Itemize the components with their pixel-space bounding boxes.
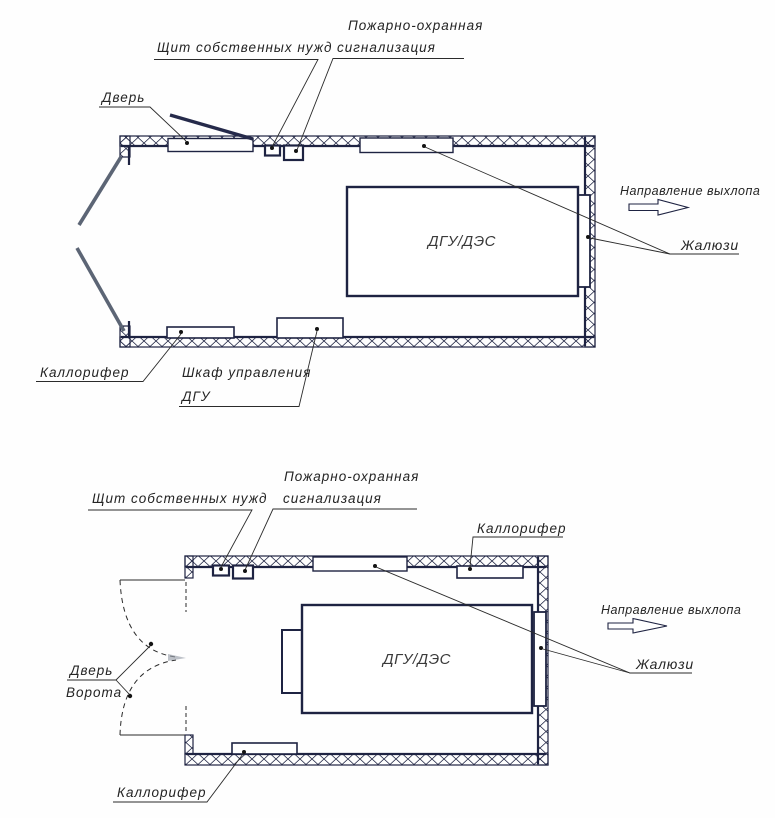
top-heater-dot — [179, 330, 183, 334]
plans-canvas: Щит собственных нужд Пожарно-охранная си… — [0, 0, 775, 818]
bottom-heater-top-dot — [468, 567, 472, 571]
bottom-heater-bottom-dot — [242, 750, 246, 754]
top-fire-label-line1: Пожарно-охранная — [348, 18, 483, 33]
bottom-side-louver-dot — [539, 646, 543, 650]
bottom-heater-top-unit — [457, 566, 523, 578]
top-equipment — [167, 187, 578, 338]
top-control-cabinet-unit — [277, 318, 343, 338]
bottom-door-label: Дверь — [68, 663, 113, 678]
top-gate-leaf-lower — [77, 248, 124, 331]
top-heater-unit — [167, 327, 234, 338]
bottom-fire-leader-dot — [243, 569, 247, 573]
top-door-leader-dot — [185, 141, 189, 145]
bottom-vent-louver — [313, 557, 407, 571]
bottom-gate-meeting-mark — [168, 654, 186, 661]
bottom-gate-label: Ворота — [66, 685, 122, 700]
bottom-generator-radiator — [282, 630, 302, 693]
bottom-gate-opening — [120, 580, 186, 735]
bottom-panel-label: Щит собственных нужд — [92, 491, 267, 506]
top-fire-alarm-box — [284, 146, 303, 161]
bottom-louvers-leader-side — [543, 649, 630, 673]
top-door-open-leaf — [170, 115, 253, 139]
bottom-vent-dot — [373, 564, 377, 568]
top-side-louver — [578, 195, 590, 287]
top-door-panel — [168, 139, 253, 152]
bottom-heater-bottom-unit — [232, 743, 297, 754]
bottom-gate-dot-lower — [128, 694, 132, 698]
top-cabinet-dot — [315, 327, 319, 331]
top-cabinet-label-line1: Шкаф управления — [182, 365, 311, 380]
top-louvers-leader-side — [590, 238, 670, 254]
bottom-side-louver — [534, 612, 546, 706]
bottom-fire-alarm-box — [233, 566, 253, 579]
top-vent-louver — [360, 138, 453, 153]
bottom-gate-dot-upper — [149, 642, 153, 646]
bottom-fire-label-line2: сигнализация — [283, 491, 382, 506]
bottom-fire-label-line1: Пожарно-охранная — [284, 469, 419, 484]
top-fire-label-line2: сигнализация — [337, 40, 436, 55]
bottom-generator-label: ДГУ/ДЭС — [381, 651, 451, 668]
bottom-wall-west-lower — [185, 735, 193, 754]
bottom-gate-swing-arc-upper — [120, 580, 176, 657]
technical-drawing-page: Щит собственных нужд Пожарно-охранная си… — [0, 0, 775, 818]
top-cabinet-label-line2: ДГУ — [180, 389, 211, 404]
top-generator-label: ДГУ/ДЭС — [426, 233, 496, 250]
top-door-label: Дверь — [100, 90, 145, 105]
top-exhaust-arrow-icon — [629, 200, 688, 216]
bottom-louvers-label: Жалюзи — [635, 656, 694, 672]
top-exhaust-label: Направление выхлопа — [620, 184, 760, 198]
top-gate-leaf-upper — [79, 157, 121, 225]
bottom-equipment — [232, 566, 532, 754]
bottom-plan: Щит собственных нужд Пожарно-охранная си… — [66, 469, 741, 802]
top-fire-leader-dot — [294, 149, 298, 153]
top-panel-leader-dot — [270, 146, 274, 150]
top-side-louver-dot — [586, 235, 590, 239]
bottom-panel-leader-dot — [219, 567, 223, 571]
bottom-exhaust-label: Направление выхлопа — [601, 603, 741, 617]
bottom-heater-bottom-label: Каллорифер — [117, 785, 207, 800]
top-plan: Щит собственных нужд Пожарно-охранная си… — [36, 18, 760, 407]
top-vent-dot — [422, 144, 426, 148]
bottom-heater-top-label: Каллорифер — [477, 521, 567, 536]
top-heater-label: Каллорифер — [40, 365, 130, 380]
bottom-exhaust-arrow-icon — [608, 619, 667, 634]
bottom-wall-south — [185, 754, 548, 765]
top-panel-label: Щит собственных нужд — [157, 40, 332, 55]
top-louvers-label: Жалюзи — [680, 237, 739, 253]
